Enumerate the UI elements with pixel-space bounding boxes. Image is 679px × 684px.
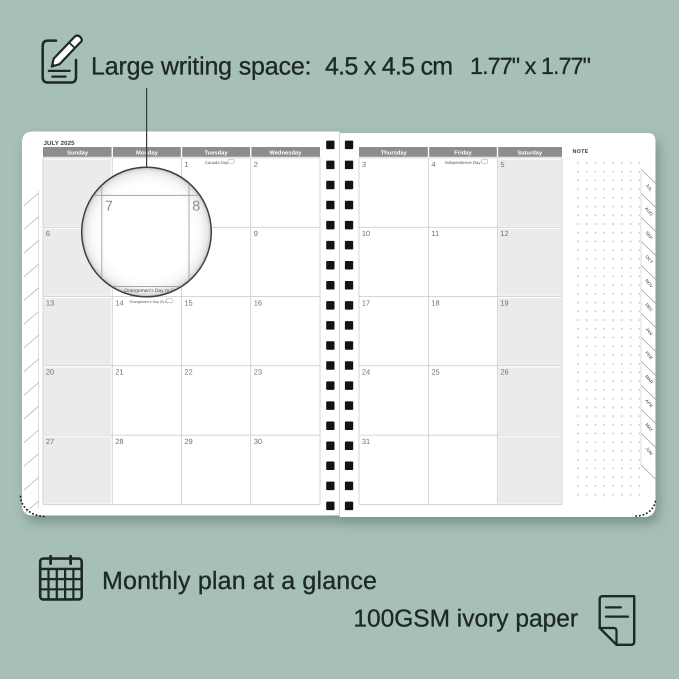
svg-text:Independence Day: Independence Day — [445, 160, 482, 165]
svg-text:22: 22 — [184, 368, 192, 377]
svg-text:3: 3 — [362, 160, 366, 169]
svg-text:17: 17 — [362, 298, 370, 307]
svg-text:JULY 2025: JULY 2025 — [44, 140, 76, 147]
svg-text:Wednesday: Wednesday — [269, 149, 302, 156]
svg-text:8: 8 — [192, 198, 200, 214]
svg-text:11: 11 — [431, 229, 439, 238]
svg-text:28: 28 — [115, 437, 123, 446]
svg-text:29: 29 — [184, 437, 192, 446]
svg-text:Orangemen’s Day (N.L): Orangemen’s Day (N.L) — [130, 300, 169, 304]
svg-text:12: 12 — [500, 229, 508, 238]
svg-text:10: 10 — [362, 229, 370, 238]
svg-text:4: 4 — [431, 160, 435, 169]
svg-text:26: 26 — [500, 368, 508, 377]
svg-text:4.5 x 4.5 cm: 4.5 x 4.5 cm — [325, 52, 452, 80]
svg-text:31: 31 — [362, 437, 370, 446]
svg-text:1.77" x 1.77": 1.77" x 1.77" — [470, 53, 591, 79]
svg-text:20: 20 — [46, 368, 54, 377]
svg-text:30: 30 — [254, 437, 262, 446]
svg-text:Thursday: Thursday — [381, 149, 408, 156]
svg-text:16: 16 — [254, 298, 262, 307]
svg-text:Tuesday: Tuesday — [205, 149, 229, 156]
svg-text:6: 6 — [46, 229, 50, 238]
svg-text:5: 5 — [500, 160, 504, 169]
svg-text:23: 23 — [254, 368, 262, 377]
svg-text:2: 2 — [254, 160, 258, 169]
svg-text:19: 19 — [500, 298, 508, 307]
svg-text:Monday: Monday — [136, 149, 159, 156]
svg-text:7: 7 — [105, 198, 113, 214]
svg-text:9: 9 — [254, 229, 258, 238]
svg-text:21: 21 — [115, 368, 123, 377]
svg-text:Friday: Friday — [454, 149, 472, 156]
svg-text:24: 24 — [362, 368, 370, 377]
svg-text:13: 13 — [46, 298, 54, 307]
svg-text:1: 1 — [184, 160, 188, 169]
svg-text:18: 18 — [431, 298, 439, 307]
svg-text:Monthly plan at a glance: Monthly plan at a glance — [102, 567, 377, 595]
svg-text:25: 25 — [431, 368, 439, 377]
svg-text:27: 27 — [46, 437, 54, 446]
svg-text:Sunday: Sunday — [67, 149, 89, 156]
svg-text:15: 15 — [184, 298, 192, 307]
svg-text:Large writing space:: Large writing space: — [91, 52, 311, 80]
svg-text:100GSM ivory paper: 100GSM ivory paper — [353, 606, 578, 633]
svg-text:14: 14 — [115, 298, 123, 307]
svg-text:NOTE: NOTE — [573, 149, 589, 155]
svg-text:Saturday: Saturday — [517, 149, 543, 156]
svg-text:Canada Day: Canada Day — [205, 160, 229, 165]
